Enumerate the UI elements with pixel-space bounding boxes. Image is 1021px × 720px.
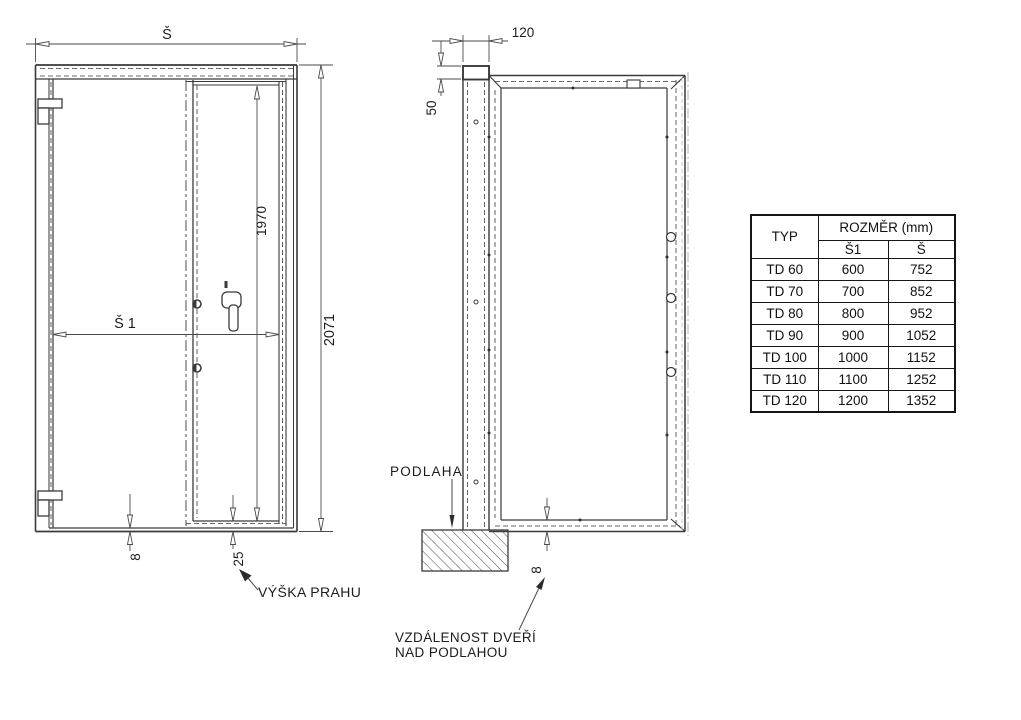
cell-type: TD 120 bbox=[751, 390, 818, 412]
cell-s: 752 bbox=[888, 258, 955, 280]
threshold-leader bbox=[239, 569, 258, 590]
cell-s1: 1200 bbox=[818, 390, 888, 412]
cell-type: TD 90 bbox=[751, 324, 818, 346]
table-row: TD 80 800 952 bbox=[751, 302, 955, 324]
cell-s1: 900 bbox=[818, 324, 888, 346]
fastener-dots bbox=[488, 87, 669, 522]
hinge-knuckles bbox=[667, 233, 676, 377]
cell-type: TD 100 bbox=[751, 346, 818, 368]
cell-type: TD 80 bbox=[751, 302, 818, 324]
dim-frame-depth: 120 bbox=[512, 25, 535, 40]
dim-clear-width-label: Š 1 bbox=[114, 315, 136, 332]
hinge-bottom bbox=[38, 491, 62, 516]
floor-block bbox=[422, 530, 508, 571]
floor-gap-note-line1: VZDÁLENOST DVEŘÍ bbox=[395, 630, 536, 645]
table-row: TD 110 1100 1252 bbox=[751, 368, 955, 390]
hinge-top bbox=[38, 99, 62, 124]
dim-total-height: 2071 bbox=[322, 314, 338, 346]
door-technical-drawing-page: Š Š 1 1970 2071 8 25 VÝŠKA PRAHU bbox=[0, 0, 1021, 720]
dim-width-label: Š bbox=[162, 26, 172, 43]
post-holes bbox=[474, 120, 478, 484]
cell-type: TD 110 bbox=[751, 368, 818, 390]
cell-type: TD 60 bbox=[751, 258, 818, 280]
cell-s: 1352 bbox=[888, 390, 955, 412]
table-row: TD 120 1200 1352 bbox=[751, 390, 955, 412]
table-header-dimension: ROZMĚR (mm) bbox=[818, 215, 955, 240]
cell-s1: 800 bbox=[818, 302, 888, 324]
floor-gap-leader bbox=[519, 577, 545, 630]
front-view bbox=[36, 65, 298, 532]
table-row: TD 70 700 852 bbox=[751, 280, 955, 302]
threshold-note: VÝŠKA PRAHU bbox=[258, 584, 361, 600]
dim-bottom-gap: 8 bbox=[128, 553, 143, 561]
floor-gap-note-line2: NAD PODLAHOU bbox=[395, 645, 508, 660]
table-header-type: TYP bbox=[751, 215, 818, 258]
table-row: TD 100 1000 1152 bbox=[751, 346, 955, 368]
table-header-width1: Š1 bbox=[818, 240, 888, 258]
floor-label: PODLAHA bbox=[390, 464, 463, 479]
dim-threshold-height: 25 bbox=[231, 551, 246, 566]
cell-s: 952 bbox=[888, 302, 955, 324]
front-view-dimensions bbox=[26, 38, 333, 551]
table-header-width: Š bbox=[888, 240, 955, 258]
table-row: TD 90 900 1052 bbox=[751, 324, 955, 346]
door-handle bbox=[222, 281, 241, 331]
cell-type: TD 70 bbox=[751, 280, 818, 302]
cell-s: 1152 bbox=[888, 346, 955, 368]
table-row: TD 60 600 752 bbox=[751, 258, 955, 280]
dim-top-offset: 50 bbox=[424, 100, 439, 115]
cell-s1: 600 bbox=[818, 258, 888, 280]
size-table: TYP ROZMĚR (mm) Š1 Š TD 60 600 752 TD 70… bbox=[750, 214, 956, 413]
dim-floor-gap: 8 bbox=[529, 566, 544, 574]
front-view-dim-arrows bbox=[36, 42, 324, 545]
cell-s1: 1000 bbox=[818, 346, 888, 368]
cell-s: 1052 bbox=[888, 324, 955, 346]
side-view bbox=[463, 66, 688, 536]
floor-leader bbox=[450, 479, 455, 528]
cell-s1: 700 bbox=[818, 280, 888, 302]
dim-leaf-height: 1970 bbox=[254, 206, 269, 236]
cell-s: 1252 bbox=[888, 368, 955, 390]
cell-s: 852 bbox=[888, 280, 955, 302]
cell-s1: 1100 bbox=[818, 368, 888, 390]
keyhole-icon bbox=[225, 281, 228, 288]
